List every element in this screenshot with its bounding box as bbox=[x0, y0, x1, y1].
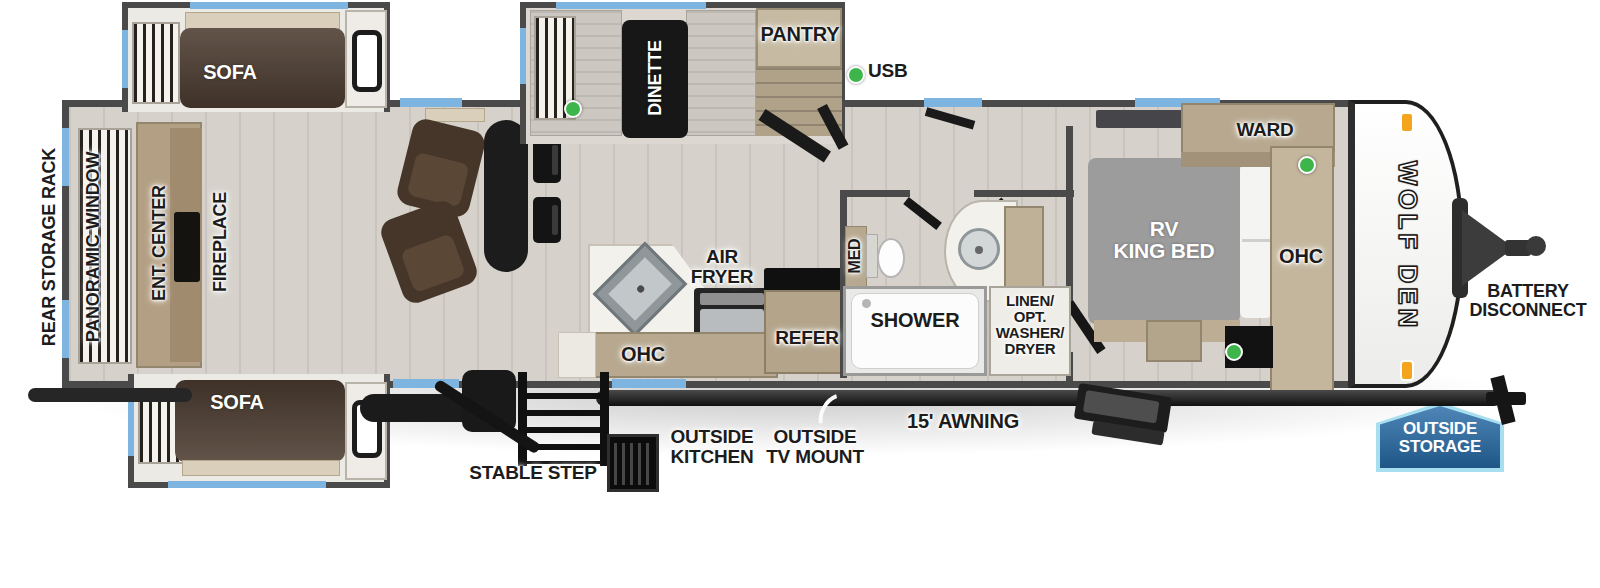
slide-accent bbox=[128, 398, 134, 456]
label-air-fryer: AIR FRYER bbox=[678, 247, 766, 287]
bedroom-wall bbox=[1066, 126, 1073, 308]
pillow-divider bbox=[1242, 239, 1270, 242]
rear-window-accent bbox=[62, 128, 69, 186]
label-med: MED bbox=[847, 216, 867, 296]
window-blinds bbox=[132, 22, 180, 104]
label-kitchen-ohc: OHC bbox=[612, 344, 674, 365]
slide-accent bbox=[556, 2, 706, 9]
label-battery-disconnect: BATTERY DISCONNECT bbox=[1446, 282, 1600, 320]
label-dinette: DINETTE bbox=[646, 13, 666, 143]
label-wolf-den-logo: WOLF DEN bbox=[1391, 146, 1421, 346]
hitch-ball-knob bbox=[1526, 236, 1546, 256]
label-refer: REFER bbox=[766, 328, 848, 348]
label-panoramic-window: PANORAMIC WINDOW bbox=[84, 140, 106, 355]
bath-wall bbox=[974, 190, 1074, 197]
floorplan-canvas: OUTSIDE STORAGE REAR STORAGE RACK PANORA… bbox=[0, 0, 1600, 588]
overhead-bunk bbox=[1096, 110, 1190, 128]
outside-storage-label: OUTSIDE STORAGE bbox=[1376, 420, 1504, 456]
chair-cushion bbox=[407, 152, 470, 208]
label-bedroom-ohc: OHC bbox=[1268, 246, 1334, 267]
burner-strip bbox=[700, 293, 764, 305]
marker-light-icon bbox=[1400, 360, 1414, 381]
chair-cushion bbox=[400, 233, 466, 293]
label-sofa-bottom: SOFA bbox=[192, 392, 282, 413]
console-shelf bbox=[425, 108, 485, 122]
slide-accent bbox=[168, 481, 326, 488]
window-accent bbox=[612, 379, 686, 388]
marker-light-icon bbox=[1400, 112, 1414, 133]
dinette-bench bbox=[686, 10, 756, 136]
slide-accent bbox=[122, 30, 128, 88]
rear-bumper bbox=[28, 388, 192, 402]
entry-door-accent bbox=[924, 98, 982, 107]
label-shower: SHOWER bbox=[853, 310, 977, 331]
label-pantry: PANTRY bbox=[760, 24, 840, 45]
label-linen-closet: LINEN/ OPT. WASHER/ DRYER bbox=[989, 293, 1071, 357]
vanity-drain bbox=[975, 246, 983, 254]
bed-pillows bbox=[1240, 164, 1272, 318]
awning-rail bbox=[596, 390, 1502, 406]
oven-front bbox=[700, 309, 764, 334]
toilet-bowl bbox=[877, 238, 905, 278]
step-rail bbox=[518, 372, 527, 466]
bedroom-ohc-cabinet bbox=[1270, 146, 1334, 392]
usb-indicator-icon bbox=[564, 100, 582, 118]
label-rear-storage-rack: REAR STORAGE RACK bbox=[40, 137, 62, 357]
window-accent bbox=[400, 98, 462, 107]
fireplace-insert bbox=[174, 212, 200, 282]
label-outside-tv-mount: OUTSIDE TV MOUNT bbox=[748, 427, 882, 467]
slide-accent bbox=[190, 2, 348, 9]
usb-indicator-icon bbox=[1225, 343, 1243, 361]
air-fryer-range bbox=[694, 288, 770, 338]
label-ward: WARD bbox=[1213, 120, 1317, 140]
usb-indicator-icon bbox=[1298, 156, 1316, 174]
label-fireplace: FIREPLACE bbox=[211, 167, 233, 317]
awning-bracket bbox=[1486, 392, 1526, 405]
label-stable-step: STABLE STEP bbox=[446, 463, 620, 483]
usb-indicator-icon bbox=[847, 66, 865, 84]
label-ent-center: ENT. CENTER bbox=[150, 163, 172, 323]
refer-top bbox=[764, 268, 850, 292]
step-rungs bbox=[527, 382, 600, 464]
bath-wall bbox=[840, 190, 910, 197]
label-awning: 15' AWNING bbox=[898, 411, 1028, 432]
label-king-bed: RV KING BED bbox=[1092, 218, 1236, 263]
door-window bbox=[1083, 390, 1160, 423]
label-usb: USB bbox=[868, 61, 922, 81]
stool bbox=[533, 197, 561, 243]
shower-drain bbox=[862, 299, 871, 308]
bedside-cabinet bbox=[1146, 320, 1202, 362]
stool-edge bbox=[552, 145, 558, 175]
rear-window-accent bbox=[62, 300, 69, 358]
slide-side-window bbox=[352, 30, 382, 92]
sofa-shelf bbox=[182, 460, 340, 476]
slide-accent bbox=[520, 28, 526, 84]
stool-edge bbox=[552, 205, 558, 235]
label-sofa-top: SOFA bbox=[185, 62, 275, 83]
counter-end bbox=[558, 332, 596, 378]
